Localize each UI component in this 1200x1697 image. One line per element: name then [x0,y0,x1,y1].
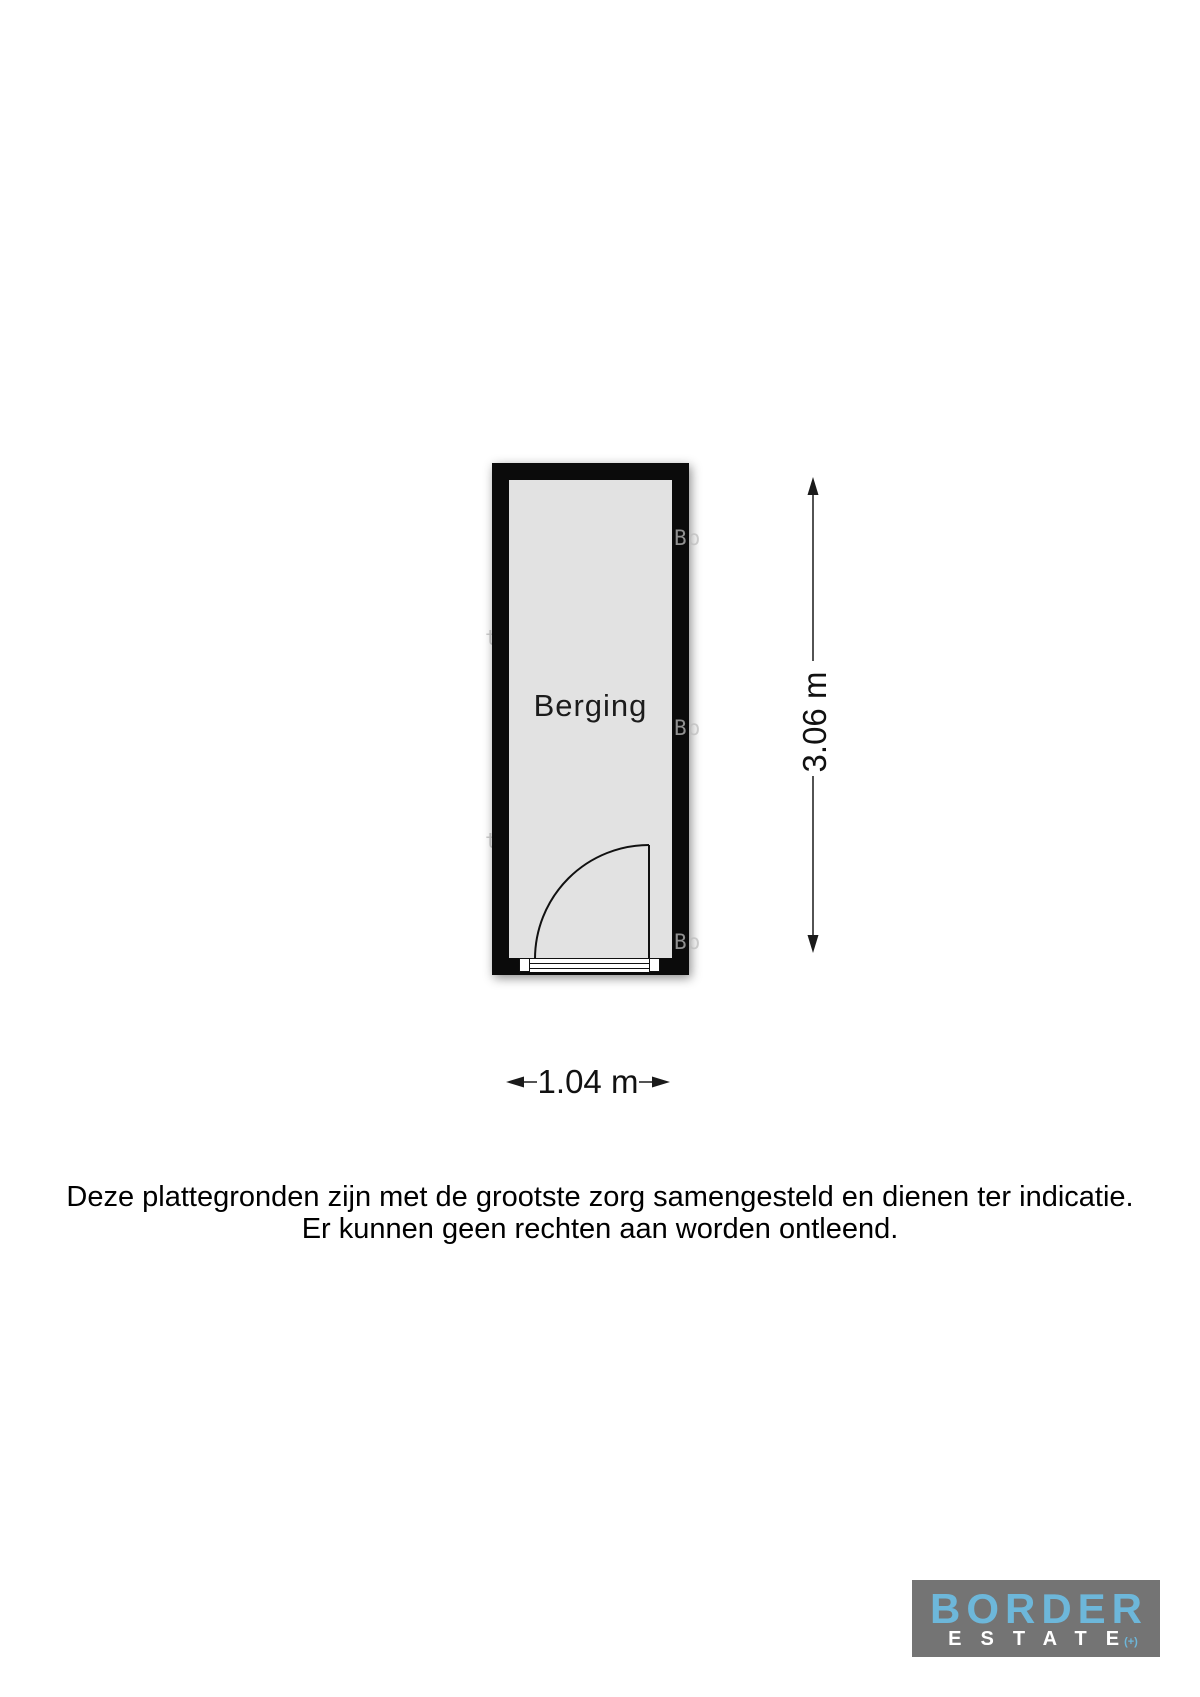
door-jamb-right [649,958,660,972]
room-label: Berging [492,688,689,724]
disclaimer-line-1: Deze plattegronden zijn met de grootste … [0,1181,1200,1213]
arrow-up-icon [808,477,819,495]
door-threshold [519,958,660,975]
height-dimension-label: 3.06 m [795,647,835,797]
logo-plus-suffix: (+) [1124,1636,1138,1648]
door-jamb-left [519,958,530,972]
floorplan-page: te+ te+ Bo Bo Bo Berging 3.06 m 1.04 m D… [0,0,1200,1697]
width-dimension-label: 1.04 m [508,1063,668,1101]
logo-name-text: BORDER [930,1589,1148,1629]
wall-outer-edge [519,972,660,975]
arrow-down-icon [808,935,819,953]
door-sill-lines [530,958,649,970]
disclaimer-line-2: Er kunnen geen rechten aan worden ontlee… [0,1213,1200,1245]
logo-subtitle-row: ESTATE(+) [948,1629,1138,1649]
watermark-fragment: Bo [674,930,701,954]
watermark-fragment: Bo [674,526,701,550]
disclaimer: Deze plattegronden zijn met de grootste … [0,1181,1200,1245]
border-estate-logo: BORDER ESTATE(+) [912,1580,1160,1657]
logo-subtitle-text: ESTATE [948,1629,1138,1649]
